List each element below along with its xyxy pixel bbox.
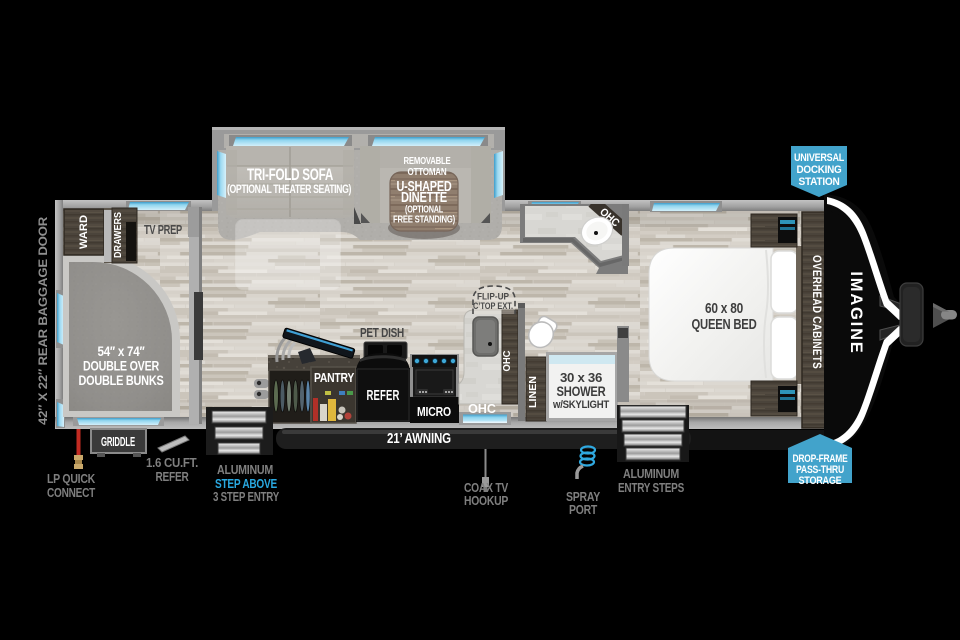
- svg-text:REFER: REFER: [367, 388, 400, 404]
- svg-text:OHC: OHC: [468, 402, 496, 416]
- svg-text:TRI-FOLD SOFA: TRI-FOLD SOFA: [247, 165, 333, 184]
- svg-text:SPRAY: SPRAY: [566, 490, 601, 504]
- svg-text:OHC: OHC: [501, 350, 513, 371]
- svg-text:TV PREP: TV PREP: [144, 223, 182, 237]
- svg-text:DRAWERS: DRAWERS: [113, 212, 124, 258]
- svg-text:LINEN: LINEN: [527, 376, 539, 408]
- svg-text:SHOWER: SHOWER: [557, 383, 606, 399]
- svg-text:LP QUICK: LP QUICK: [47, 472, 95, 486]
- svg-text:COAX TV: COAX TV: [464, 481, 509, 495]
- svg-text:ENTRY STEPS: ENTRY STEPS: [618, 481, 684, 495]
- svg-text:(OPTIONAL THEATER SEATING): (OPTIONAL THEATER SEATING): [227, 184, 351, 196]
- svg-text:IMAGINE: IMAGINE: [847, 271, 865, 354]
- svg-text:DOCKING: DOCKING: [797, 164, 842, 176]
- svg-text:OTTOMAN: OTTOMAN: [408, 166, 447, 178]
- svg-text:WARD: WARD: [78, 215, 90, 249]
- svg-text:ALUMINUM: ALUMINUM: [217, 463, 273, 477]
- svg-text:DOUBLE BUNKS: DOUBLE BUNKS: [79, 373, 164, 388]
- svg-text:PET DISH: PET DISH: [360, 326, 404, 340]
- svg-text:STORAGE: STORAGE: [799, 475, 842, 487]
- svg-text:60 x 80: 60 x 80: [705, 300, 743, 317]
- svg-text:3 STEP ENTRY: 3 STEP ENTRY: [213, 490, 280, 504]
- svg-text:ALUMINUM: ALUMINUM: [623, 467, 679, 481]
- svg-text:QUEEN BED: QUEEN BED: [692, 316, 757, 333]
- svg-text:HOOKUP: HOOKUP: [464, 494, 508, 508]
- svg-text:42″ X 22″ REAR BAGGAGE DOOR: 42″ X 22″ REAR BAGGAGE DOOR: [36, 216, 50, 425]
- svg-text:CONNECT: CONNECT: [47, 486, 96, 500]
- svg-text:w/SKYLIGHT: w/SKYLIGHT: [552, 399, 609, 411]
- svg-text:STEP ABOVE: STEP ABOVE: [215, 477, 277, 491]
- svg-text:STATION: STATION: [799, 176, 840, 188]
- svg-text:PORT: PORT: [569, 503, 598, 517]
- svg-text:21’ AWNING: 21’ AWNING: [387, 430, 451, 447]
- svg-text:54′′ x 74′′: 54′′ x 74′′: [98, 344, 145, 359]
- svg-text:OVERHEAD CABINETS: OVERHEAD CABINETS: [810, 255, 822, 369]
- svg-text:FREE STANDING): FREE STANDING): [393, 214, 455, 226]
- svg-text:1.6 CU.FT.: 1.6 CU.FT.: [146, 456, 198, 470]
- svg-text:DOUBLE OVER: DOUBLE OVER: [83, 359, 159, 374]
- svg-text:C’TOP EXT.: C’TOP EXT.: [473, 301, 513, 312]
- svg-text:GRIDDLE: GRIDDLE: [101, 435, 135, 449]
- svg-text:UNIVERSAL: UNIVERSAL: [794, 152, 844, 164]
- svg-text:REFER: REFER: [156, 470, 189, 484]
- svg-text:PANTRY: PANTRY: [314, 371, 355, 385]
- svg-text:MICRO: MICRO: [417, 404, 451, 419]
